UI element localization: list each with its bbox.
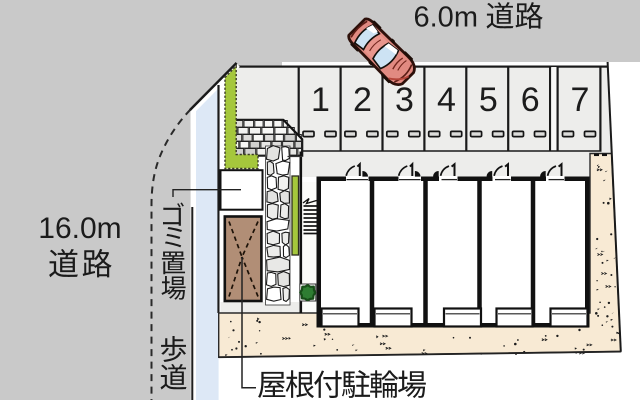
svg-text:16.0m: 16.0m (38, 212, 121, 245)
svg-text:1: 1 (311, 81, 330, 119)
svg-text:3: 3 (395, 81, 414, 119)
svg-text:2: 2 (353, 81, 372, 119)
svg-text:6.0m: 6.0m (414, 2, 478, 34)
svg-text:4: 4 (437, 81, 456, 119)
svg-text:6: 6 (521, 81, 540, 119)
svg-text:5: 5 (479, 81, 498, 119)
svg-text:7: 7 (571, 81, 590, 119)
